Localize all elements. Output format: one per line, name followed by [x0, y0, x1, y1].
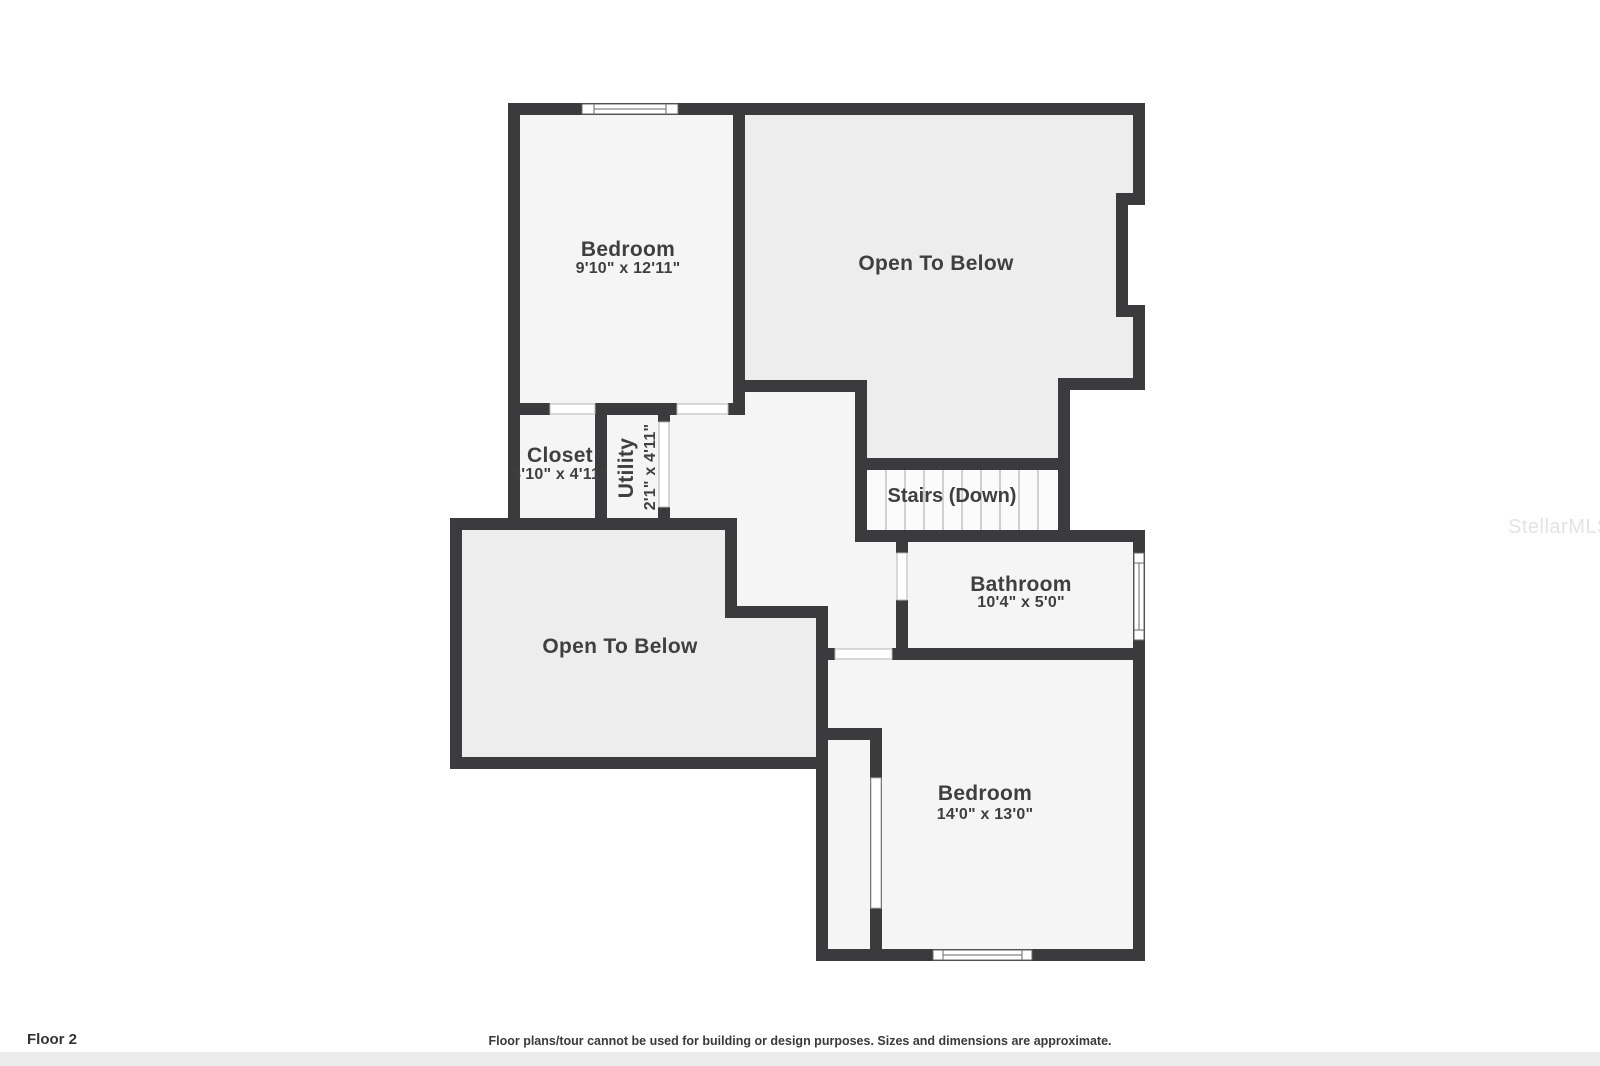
utility-dims: 2'1" x 4'11" [642, 424, 659, 511]
wall-segment [728, 403, 745, 415]
wall-segment [892, 648, 1145, 660]
wall-segment [658, 403, 670, 422]
wall-segment [816, 648, 835, 660]
bedroom-top-window [582, 104, 678, 114]
open-to-below-lower-label: Open To Below [542, 635, 698, 658]
bedroom-top-label: Bedroom [581, 238, 675, 261]
wall-segment [450, 757, 828, 769]
bathroom-window [1134, 553, 1144, 640]
bedroom-top-door-opening [677, 404, 728, 414]
bathroom-door-opening [897, 553, 907, 600]
wall-segment [855, 530, 1145, 542]
wall-segment [450, 518, 737, 530]
wall-segment [896, 542, 908, 553]
bathroom-label: Bathroom [970, 573, 1072, 596]
closet-dims: 3'10" x 4'11" [512, 466, 608, 483]
wall-segment [1058, 378, 1145, 390]
wall-segment [733, 380, 867, 392]
bedroom-bottom-dims: 14'0" x 13'0" [937, 806, 1034, 823]
closet-label: Closet [527, 444, 593, 467]
closet-nook-opening [871, 778, 881, 908]
bedroom-bottom-window [933, 950, 1032, 960]
wall-segment [1116, 193, 1128, 317]
floor-plan-page: Bedroom 9'10" x 12'11" Open To Below Clo… [0, 0, 1600, 1066]
bedroom-top-dims: 9'10" x 12'11" [576, 260, 681, 277]
bathroom-dims: 10'4" x 5'0" [977, 594, 1064, 611]
wall-segment [725, 606, 828, 618]
footer-strip [0, 1052, 1600, 1066]
stellar-mls-watermark: StellarMLS [1508, 516, 1600, 539]
disclaimer-text: Floor plans/tour cannot be used for buil… [0, 1034, 1600, 1048]
utility-door-opening [659, 422, 669, 507]
wall-segment [450, 518, 462, 769]
wall-segment [1133, 103, 1145, 196]
wall-segment [733, 103, 745, 415]
utility-label: Utility [615, 438, 638, 498]
closet-door-opening [550, 404, 595, 414]
wall-segment [725, 518, 737, 618]
wall-segment [855, 458, 1070, 470]
floor-plan-svg: Bedroom 9'10" x 12'11" Open To Below Clo… [0, 0, 1600, 1066]
open-to-below-upper-label: Open To Below [858, 252, 1014, 275]
bedroom-bottom-label: Bedroom [938, 782, 1032, 805]
wall-segment [1133, 305, 1145, 390]
stairs-label: Stairs (Down) [888, 485, 1017, 507]
bedroom-bottom-door-opening [835, 649, 892, 659]
wall-segment [508, 403, 550, 415]
